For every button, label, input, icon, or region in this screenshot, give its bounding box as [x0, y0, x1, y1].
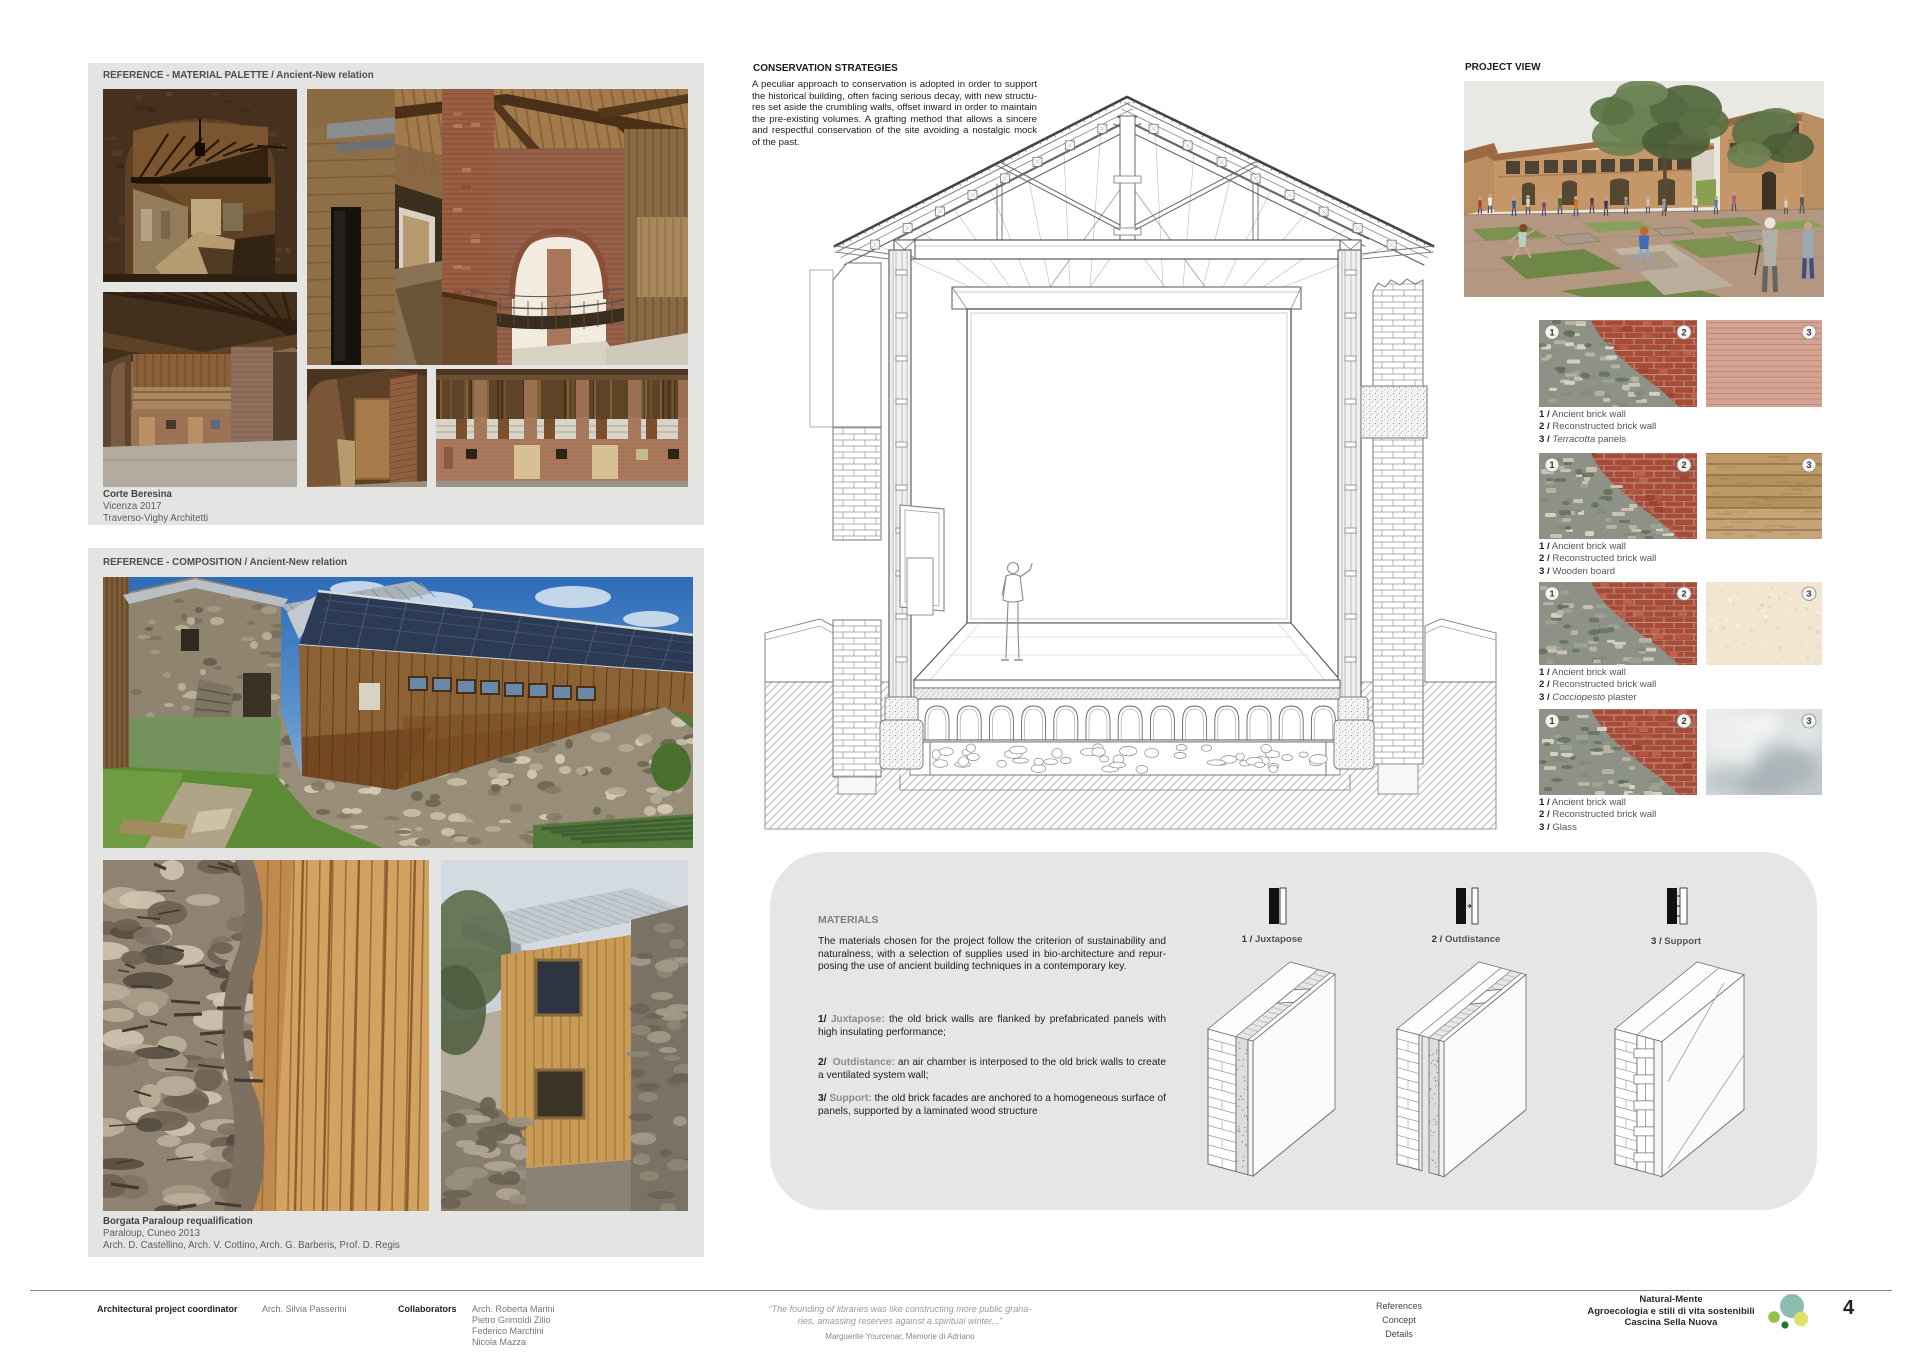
- svg-text:3: 3: [1806, 716, 1811, 726]
- svg-text:1 / Juxtapose: 1 / Juxtapose: [1242, 934, 1303, 945]
- svg-text:3: 3: [1806, 589, 1811, 599]
- svg-text:2: 2: [1681, 460, 1686, 470]
- svg-text:3: 3: [1806, 460, 1811, 470]
- svg-text:2 / Outdistance: 2 / Outdistance: [1432, 934, 1501, 945]
- svg-text:2: 2: [1681, 716, 1686, 726]
- svg-text:1: 1: [1549, 327, 1554, 337]
- svg-text:2: 2: [1681, 589, 1686, 599]
- svg-text:3: 3: [1806, 327, 1811, 337]
- svg-text:1: 1: [1549, 460, 1554, 470]
- svg-text:2: 2: [1681, 327, 1686, 337]
- svg-text:1: 1: [1549, 589, 1554, 599]
- svg-text:3 / Support: 3 / Support: [1651, 936, 1702, 947]
- svg-text:1: 1: [1549, 716, 1554, 726]
